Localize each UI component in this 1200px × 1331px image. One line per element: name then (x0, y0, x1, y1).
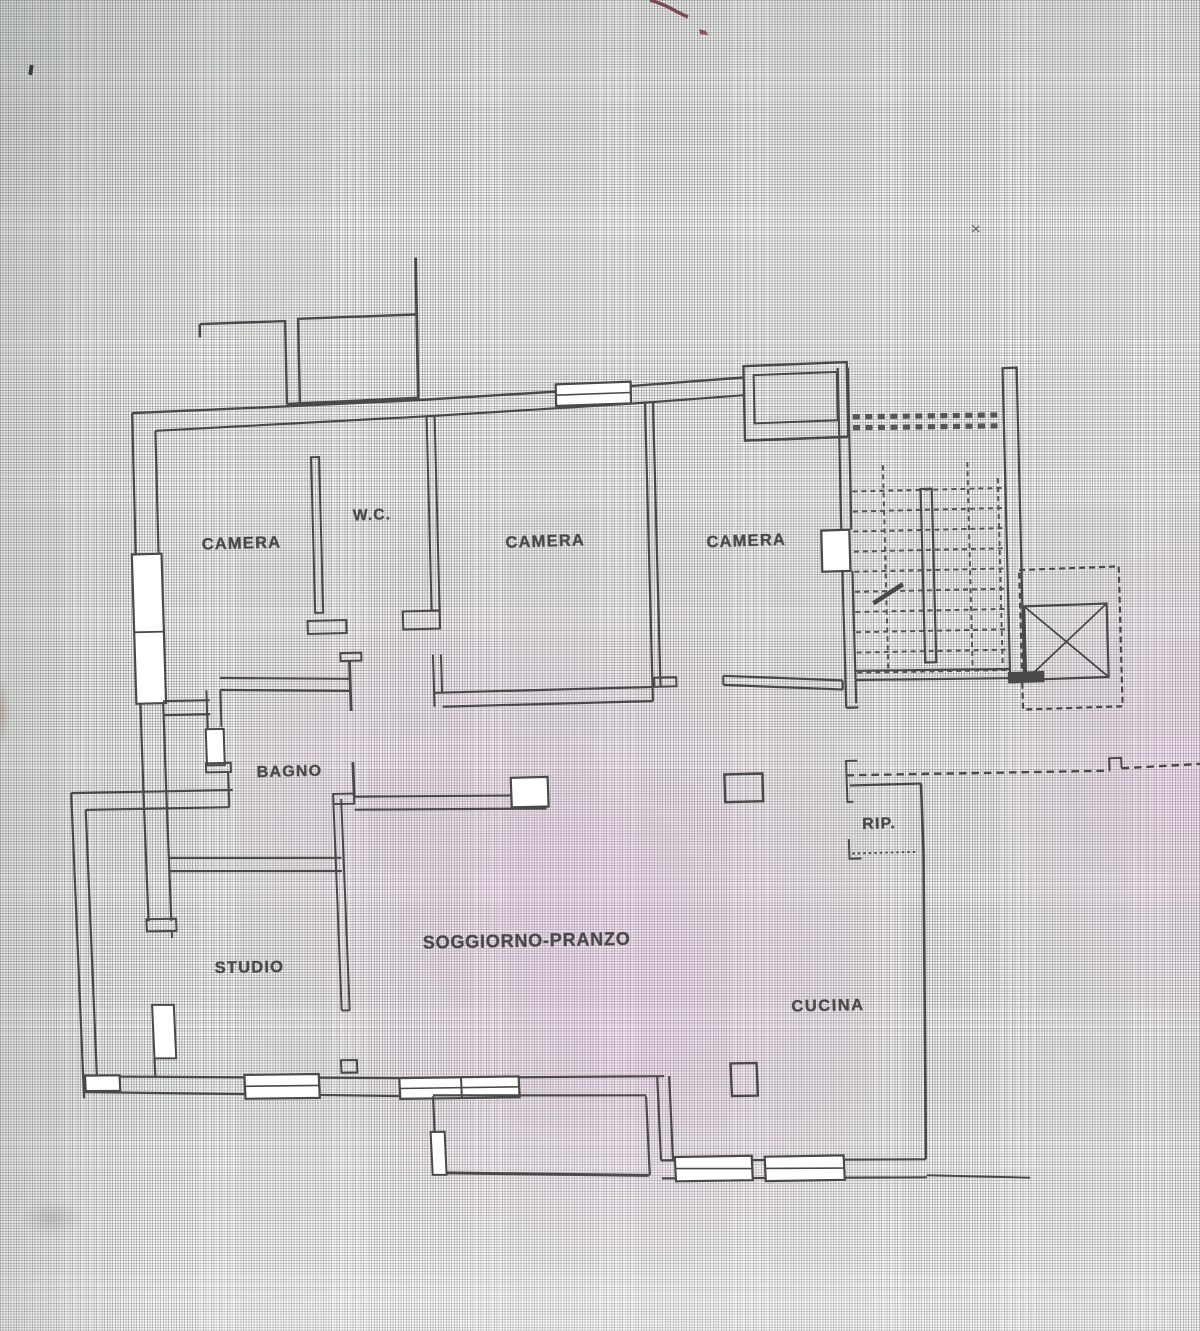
svg-text:CAMERA: CAMERA (706, 531, 786, 552)
svg-text:RIP.: RIP. (862, 815, 896, 833)
svg-text:W.C.: W.C. (353, 506, 392, 524)
svg-text:BAGNO: BAGNO (257, 763, 323, 781)
svg-text:SOGGIORNO-PRANZO: SOGGIORNO-PRANZO (423, 929, 631, 953)
svg-text:CAMERA: CAMERA (201, 534, 281, 554)
svg-text:CAMERA: CAMERA (505, 531, 585, 551)
svg-text:STUDIO: STUDIO (215, 958, 285, 977)
svg-text:CUCINA: CUCINA (791, 996, 865, 1016)
